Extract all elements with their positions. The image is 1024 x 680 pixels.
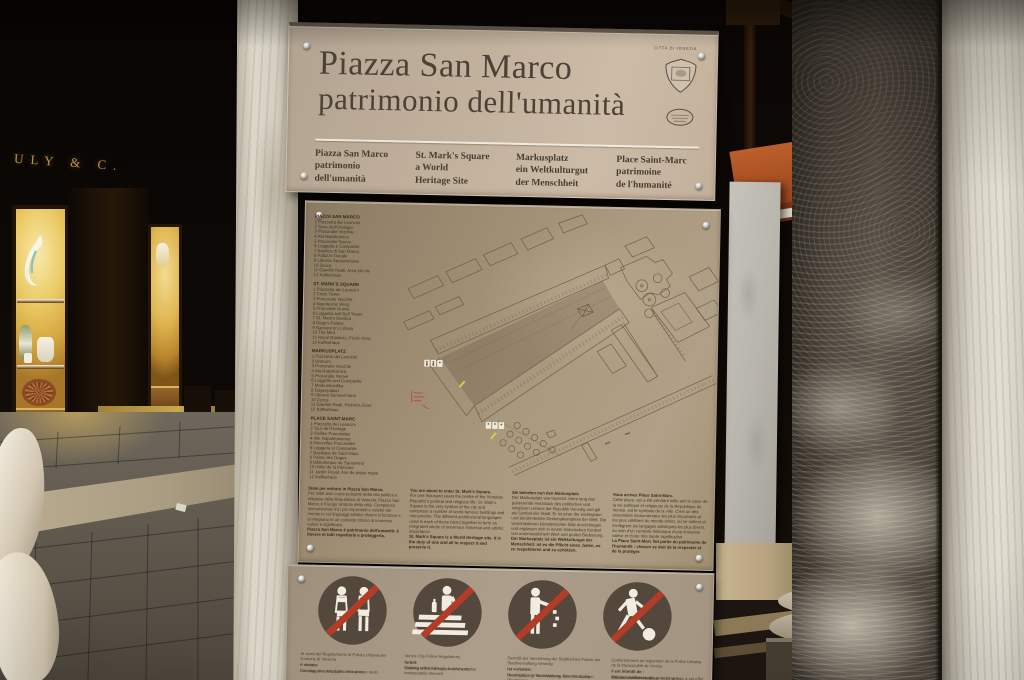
translations-row: Piazza San Marcopatrimoniodell'umanità S… — [314, 148, 707, 193]
legend-section-english: ST. MARK'S SQUARE 1 Piazzetta dei Leonci… — [312, 281, 411, 347]
scene: ULY & C. — [0, 0, 1024, 680]
intro-french: Vous arrivez Place Saint-Marc. Cette pla… — [612, 492, 708, 566]
rosette-glass-bowl — [22, 379, 56, 406]
sign-rules-panel: Ai sensi del Regolamento di Polizia Urba… — [285, 564, 715, 680]
legend-items: 1 Piazzetta dei Leoncini2 Uhrturm3 Procu… — [311, 354, 410, 414]
intro-body: For one thousand years the centre of the… — [409, 493, 505, 536]
legend-items: 1 Piazzetta dei Leoncini2 Clock Tower3 P… — [312, 287, 411, 347]
screw-icon — [298, 575, 305, 582]
map-services-icons — [424, 360, 442, 367]
sign-map-panel: PIAZZA SAN MARCO 1 Piazzetta dei Leoncin… — [297, 200, 720, 571]
sign-title-line2: patrimonio dell'umanità — [318, 82, 626, 123]
venice-crest: CITTÀ DI VENEZIA — [646, 46, 704, 130]
header-divider — [315, 139, 699, 149]
glass-bird-sculpture — [22, 233, 48, 289]
screw-icon — [303, 42, 310, 49]
legend-items: 1 Piazzetta dei Leoncini2 Tour de l'Horl… — [309, 421, 408, 481]
map-red-annotation — [412, 391, 429, 409]
rules-english: Venice City Police Regulations forbid: W… — [404, 654, 498, 656]
no-ball-games-icon — [600, 579, 676, 655]
weathered-column-shadow — [792, 0, 948, 300]
legend-section-italian: PIAZZA SAN MARCO 1 Piazzetta dei Leoncin… — [313, 214, 412, 280]
shop-window-right — [148, 224, 182, 419]
glass-object — [156, 243, 169, 267]
translation-french: Place Saint-Marcpatrimoinede l'humanité — [616, 154, 707, 193]
venice-crest-icon — [658, 55, 704, 134]
crest-caption: CITTÀ DI VENEZIA — [647, 46, 703, 52]
intro-body: Cette place, qui a été pendant mille ans… — [612, 497, 708, 540]
screw-icon — [300, 172, 307, 179]
display-shelf — [17, 365, 64, 369]
sign-header-panel: Piazza San Marco patrimonio dell'umanità… — [285, 22, 718, 201]
prohibition-icons-row — [315, 573, 675, 655]
heritage-sign: Piazza San Marco patrimonio dell'umanità… — [273, 12, 725, 680]
map-legend: PIAZZA SAN MARCO 1 Piazzetta dei Leoncin… — [309, 214, 413, 486]
glass-cup — [24, 353, 32, 363]
rules-italian: Ai sensi del Regolamento di Polizia Urba… — [301, 651, 395, 653]
no-littering-icon — [505, 577, 581, 653]
display-shelf — [17, 299, 64, 303]
rules-authority: Conformément au règlement de la Police U… — [611, 658, 706, 670]
shop-window-left — [12, 205, 69, 442]
rules-french: Conformément au règlement de la Police U… — [611, 658, 705, 660]
rules-authority: Gemäß der Verordnung der Städtischen Pol… — [507, 656, 602, 668]
intro-bold: Piazza San Marco è patrimonio dell'umani… — [307, 527, 402, 539]
no-picnicking-icon — [410, 575, 486, 651]
legend-section-french: PLACE SAINT-MARC 1 Piazzetta dei Leoncin… — [309, 415, 408, 481]
wood-bracket — [726, 0, 780, 25]
screw-icon — [696, 584, 703, 591]
intro-german: Sie betreten nun den Markusplatz. Der Ma… — [510, 490, 606, 564]
translation-italian: Piazza San Marcopatrimoniodell'umanità — [314, 148, 405, 187]
intro-row: State per entrare in Piazza San Marco. P… — [307, 486, 708, 566]
rules-german: Gemäß der Verordnung der Städtischen Pol… — [508, 656, 602, 658]
no-beachwear-icon — [315, 573, 391, 649]
rules-authority: Ai sensi del Regolamento di Polizia Urba… — [300, 651, 395, 663]
legend-items: 1 Piazzetta dei Leoncini2 Torre dell'Oro… — [313, 220, 412, 280]
intro-italian: State per entrare in Piazza San Marco. P… — [307, 486, 403, 560]
map-highlight-mark — [490, 432, 497, 439]
intro-bold: Der Markusplatz ist ein Weltkulturgut de… — [510, 536, 605, 553]
glass-pitcher — [37, 337, 54, 362]
sign-title: Piazza San Marco patrimonio dell'umanità — [318, 45, 627, 123]
map-services-icons — [486, 422, 504, 429]
site-map-drawing — [398, 207, 720, 490]
intro-body: Der Markusplatz war tausend Jahre lang d… — [511, 495, 607, 538]
leaning-stone-slab — [724, 182, 780, 557]
translation-english: St. Mark's Squarea WorldHeritage Site — [415, 150, 506, 189]
intro-body: Per mille anni cuore pulsante della vita… — [307, 491, 402, 529]
arcade-column — [68, 188, 148, 442]
intro-bold: La Place Saint-Marc fait partie du patri… — [612, 538, 707, 555]
intro-english: You are about to enter St. Mark's Square… — [408, 488, 504, 562]
intro-bold: St. Mark's Square is a World Heritage si… — [409, 534, 504, 551]
white-column — [942, 0, 1024, 680]
legend-section-german: MARKUSPLATZ 1 Piazzetta dei Leoncini2 Uh… — [311, 348, 410, 414]
translation-german: Markusplatzein Weltkulturgutder Menschhe… — [515, 152, 606, 191]
